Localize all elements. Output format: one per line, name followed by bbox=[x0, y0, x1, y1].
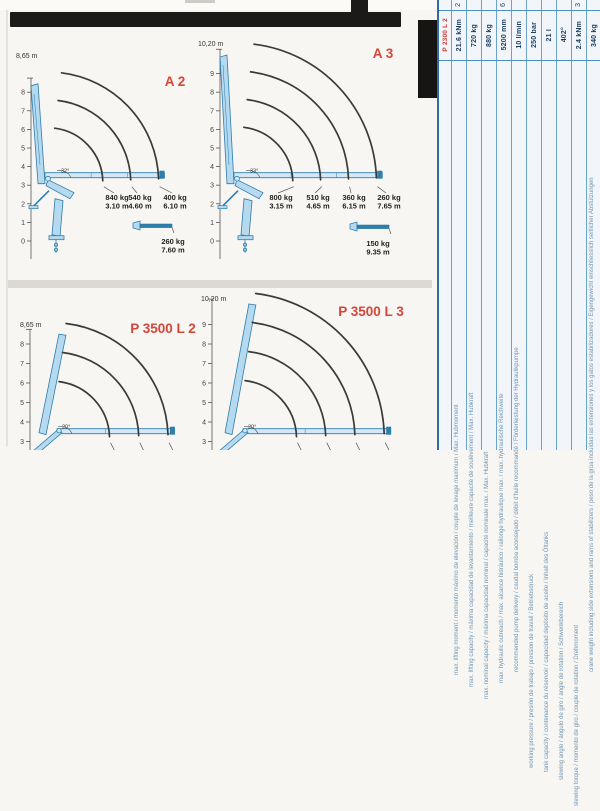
y-tick-label: 9 bbox=[210, 71, 214, 78]
load-envelope-arc bbox=[66, 324, 168, 435]
y-tick-label: 7 bbox=[21, 108, 25, 115]
y-tick-label: 5 bbox=[20, 400, 24, 407]
extension-jib-icon bbox=[140, 224, 172, 228]
leader-line bbox=[169, 443, 180, 450]
y-tick-label: 0 bbox=[210, 239, 214, 246]
spec-row-label: slewing angle / ángulo de giro / angle d… bbox=[559, 260, 566, 785]
y-tick-label: 6 bbox=[202, 381, 206, 388]
spec-column: 32.4 kNmslewing torque / momento de giro… bbox=[572, 0, 587, 450]
scanned-crane-datasheet: { "document": { "kind": "scanned crane l… bbox=[0, 0, 600, 450]
leader-line bbox=[385, 443, 396, 450]
spec-row-label: working pressure / presión de trabajo / … bbox=[529, 248, 536, 773]
y-tick-label: 6 bbox=[20, 381, 24, 388]
leader-line bbox=[111, 443, 122, 450]
spec-value-cell: 5200 mm bbox=[497, 11, 511, 59]
load-envelope-arc bbox=[251, 72, 349, 179]
y-tick-label: 6 bbox=[210, 127, 214, 134]
y-tick-label: 4 bbox=[21, 164, 25, 171]
y-tick-label: 4 bbox=[20, 420, 24, 427]
y-tick-label: 5 bbox=[210, 146, 214, 153]
load-envelope-arc bbox=[249, 352, 326, 436]
spec-row-label: max. lifting moment / momento máximo de … bbox=[454, 155, 461, 680]
boom-tip bbox=[377, 171, 382, 179]
chart-p3500l3: 345678910,20 mP 3500 L 320° bbox=[201, 294, 404, 451]
spec-band-line bbox=[439, 10, 600, 11]
extension-reach-label: 7.60 m bbox=[161, 246, 185, 255]
y-tick-label: 8 bbox=[20, 342, 24, 349]
spec-model-header: P 2300 L 2 bbox=[439, 11, 451, 59]
crane-part bbox=[225, 304, 256, 435]
spec-value-cell: 21.6 kNm bbox=[452, 11, 466, 59]
leader-line bbox=[140, 443, 151, 450]
spec-value-cell: 250 bar bbox=[527, 11, 541, 59]
scan-page: 0123456788,65 mA 232°840 kg3.10 m540 kg4… bbox=[0, 0, 600, 450]
y-tick-label: 3 bbox=[210, 183, 214, 190]
max-height-label: 10,20 m bbox=[201, 296, 226, 303]
crane-part bbox=[31, 84, 45, 184]
chart-title: P 3500 L 3 bbox=[338, 304, 404, 319]
y-tick-label: 1 bbox=[21, 220, 25, 227]
boom-tip bbox=[386, 427, 391, 435]
spec-row-label: crane weight including side extensions a… bbox=[589, 152, 596, 677]
stabilizer-pad bbox=[29, 206, 38, 209]
spec-row-label: tank capacity / contenance du réservoir … bbox=[544, 252, 551, 777]
chart-a3: 012345678910,20 mA 333°800 kg3.15 m510 k… bbox=[198, 41, 401, 259]
spec-row-label: slewing torque / momento de giro / coupl… bbox=[574, 286, 581, 811]
spec-column: 65200 mmmax. hydraulic outreach / max. a… bbox=[497, 0, 512, 450]
max-height-label: 10,20 m bbox=[198, 41, 223, 48]
load-envelope-arc bbox=[254, 44, 376, 178]
spec-row-label: max. lifting capacity / máxima capacidad… bbox=[469, 167, 476, 692]
chart-title: A 2 bbox=[165, 74, 186, 89]
crane-part bbox=[133, 221, 140, 230]
load-envelope-arc bbox=[252, 323, 355, 435]
y-tick-label: 7 bbox=[210, 108, 214, 115]
spec-value-cell: 2.4 kNm bbox=[572, 11, 586, 59]
crane-base bbox=[49, 236, 64, 240]
y-tick-label: 3 bbox=[202, 439, 206, 446]
spec-column: 402°slewing angle / ángulo de giro / ang… bbox=[557, 0, 572, 450]
crane-part bbox=[241, 199, 252, 237]
y-tick-label: 8 bbox=[202, 342, 206, 349]
spec-value-cell: 402° bbox=[557, 11, 571, 59]
crane-part bbox=[39, 334, 66, 434]
y-tick-label: 3 bbox=[21, 183, 25, 190]
y-tick-label: 4 bbox=[210, 164, 214, 171]
y-tick-label: 1 bbox=[210, 220, 214, 227]
reach-value-label: 6.15 m bbox=[342, 202, 366, 211]
spec-row-label: max. nominal capacity / máxima capacidad… bbox=[484, 179, 491, 704]
stabilizer-pad bbox=[218, 206, 227, 209]
spec-column: 10 l/minrecommended pump delivery / caud… bbox=[512, 0, 527, 450]
spec-band-line bbox=[439, 60, 600, 61]
max-height-label: 8,65 m bbox=[16, 53, 38, 60]
spec-column: 340 kgcrane weight including side extens… bbox=[587, 0, 600, 450]
boom-tip bbox=[159, 171, 164, 179]
y-tick-label: 6 bbox=[21, 127, 25, 134]
y-tick-label: 8 bbox=[21, 90, 25, 97]
spec-column: 720 kgmax. lifting capacity / máxima cap… bbox=[467, 0, 482, 450]
extension-reach-label: 9.35 m bbox=[366, 248, 390, 257]
reach-value-label: 3.15 m bbox=[269, 202, 293, 211]
spec-value-cell: 10 l/min bbox=[512, 11, 526, 59]
crane-part bbox=[46, 180, 74, 199]
reach-value-label: 3.10 m bbox=[105, 202, 129, 211]
y-tick-label: 9 bbox=[202, 322, 206, 329]
reach-value-label: 7.65 m bbox=[377, 202, 401, 211]
y-tick-label: 5 bbox=[202, 400, 206, 407]
leader-line bbox=[356, 443, 367, 450]
boom-tip bbox=[170, 427, 175, 435]
crane-part bbox=[57, 429, 174, 434]
chart-title: A 3 bbox=[373, 46, 394, 61]
spec-column: 221.6 kNmmax. lifting moment / momento m… bbox=[452, 0, 467, 450]
spec-column: P 2300 L 2 bbox=[439, 0, 452, 450]
max-height-label: 8,65 m bbox=[20, 322, 42, 329]
y-tick-label: 3 bbox=[20, 439, 24, 446]
crane-part bbox=[243, 429, 390, 434]
leader-line bbox=[298, 443, 309, 450]
crane-part bbox=[220, 55, 234, 184]
crane-part bbox=[52, 199, 63, 237]
y-tick-label: 7 bbox=[20, 361, 24, 368]
chart-p3500l2: 3456788,65 mP 3500 L 220° bbox=[20, 321, 196, 450]
reach-value-label: 4.60 m bbox=[128, 202, 152, 211]
spec-value-cell: 880 kg bbox=[482, 11, 496, 59]
spec-column: 250 barworking pressure / presión de tra… bbox=[527, 0, 542, 450]
spec-row-label: recommended pump delivery / caudal bomba… bbox=[514, 152, 521, 677]
y-tick-label: 0 bbox=[21, 239, 25, 246]
reach-value-label: 4.65 m bbox=[306, 202, 330, 211]
leader-line bbox=[327, 443, 338, 450]
spec-table: P 2300 L 2221.6 kNmmax. lifting moment /… bbox=[437, 0, 600, 450]
spec-column: 21 ltank capacity / contenance du réserv… bbox=[542, 0, 557, 450]
spec-row-label: max. hydraulic outreach / max. alcance h… bbox=[499, 163, 506, 688]
y-tick-label: 8 bbox=[210, 90, 214, 97]
crane-part bbox=[350, 222, 357, 231]
reach-value-label: 6.10 m bbox=[163, 202, 187, 211]
y-tick-label: 2 bbox=[21, 201, 25, 208]
chart-a2: 0123456788,65 mA 232°840 kg3.10 m540 kg4… bbox=[16, 53, 187, 259]
crane-part bbox=[235, 180, 263, 199]
crane-base bbox=[238, 236, 253, 240]
load-envelope-arc bbox=[62, 73, 159, 179]
y-tick-label: 2 bbox=[210, 201, 214, 208]
load-envelope-arc bbox=[63, 353, 139, 436]
extension-jib-icon bbox=[357, 225, 389, 229]
spec-value-cell: 720 kg bbox=[467, 11, 481, 59]
y-tick-label: 5 bbox=[21, 146, 25, 153]
chart-title: P 3500 L 2 bbox=[130, 321, 196, 336]
spec-value-cell: 340 kg bbox=[587, 11, 600, 59]
y-tick-label: 7 bbox=[202, 361, 206, 368]
y-tick-label: 4 bbox=[202, 420, 206, 427]
spec-column: 880 kgmax. nominal capacity / máxima cap… bbox=[482, 0, 497, 450]
spec-value-cell: 21 l bbox=[542, 11, 556, 59]
